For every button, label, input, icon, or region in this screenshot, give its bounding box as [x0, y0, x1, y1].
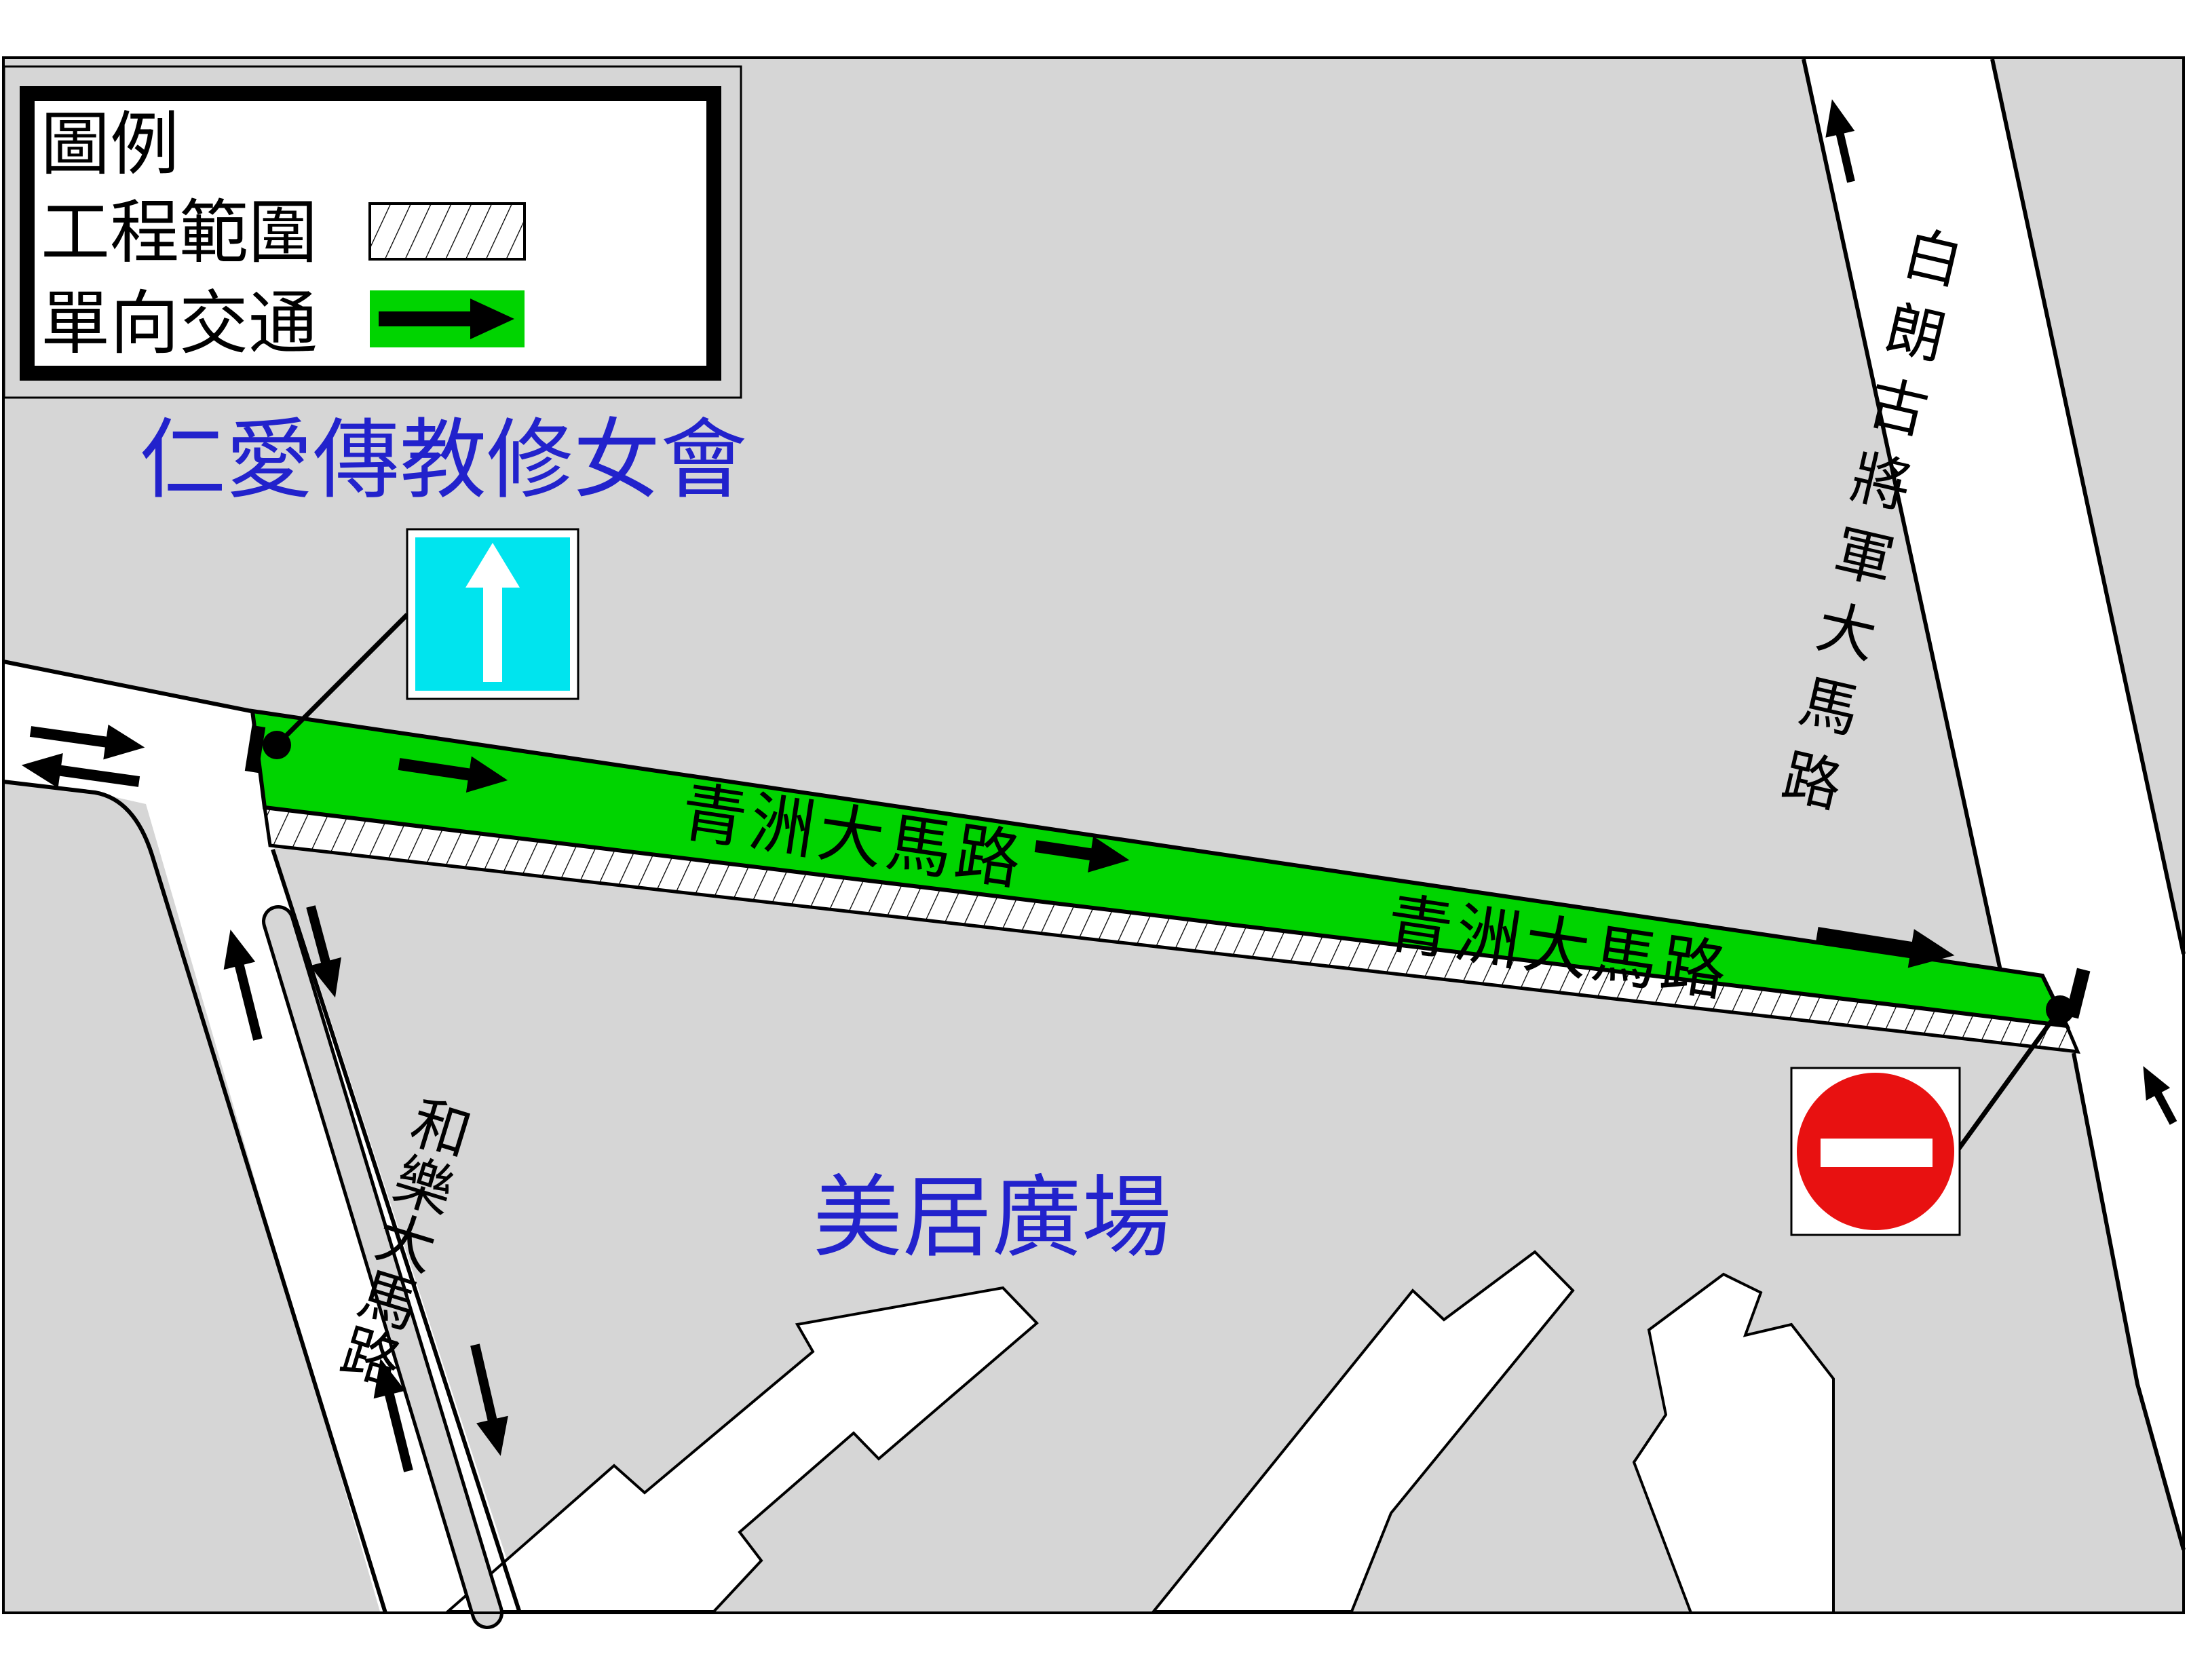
legend-oneway-label: 單向交通 [41, 286, 318, 363]
ahead-only-sign [407, 529, 578, 699]
map-canvas: 青洲大馬路 青洲大馬路 白朗古將軍大馬路 和樂大馬路 [0, 0, 2189, 1680]
place-label-mei-kui-plaza: 美居廣場 [813, 1168, 1171, 1268]
legend-works-swatch [370, 204, 525, 259]
legend-title: 圖例 [41, 107, 179, 184]
no-entry-sign [1791, 1068, 1960, 1235]
place-label-missionaries: 仁愛傳教修女會 [139, 413, 747, 509]
no-entry-bar-icon [1821, 1139, 1933, 1167]
legend-works-label: 工程範圍 [41, 195, 318, 272]
legend-box: 圖例 工程範圍 單向交通 [4, 66, 741, 398]
roadworks-map-page: 青洲大馬路 青洲大馬路 白朗古將軍大馬路 和樂大馬路 [0, 0, 2189, 1680]
